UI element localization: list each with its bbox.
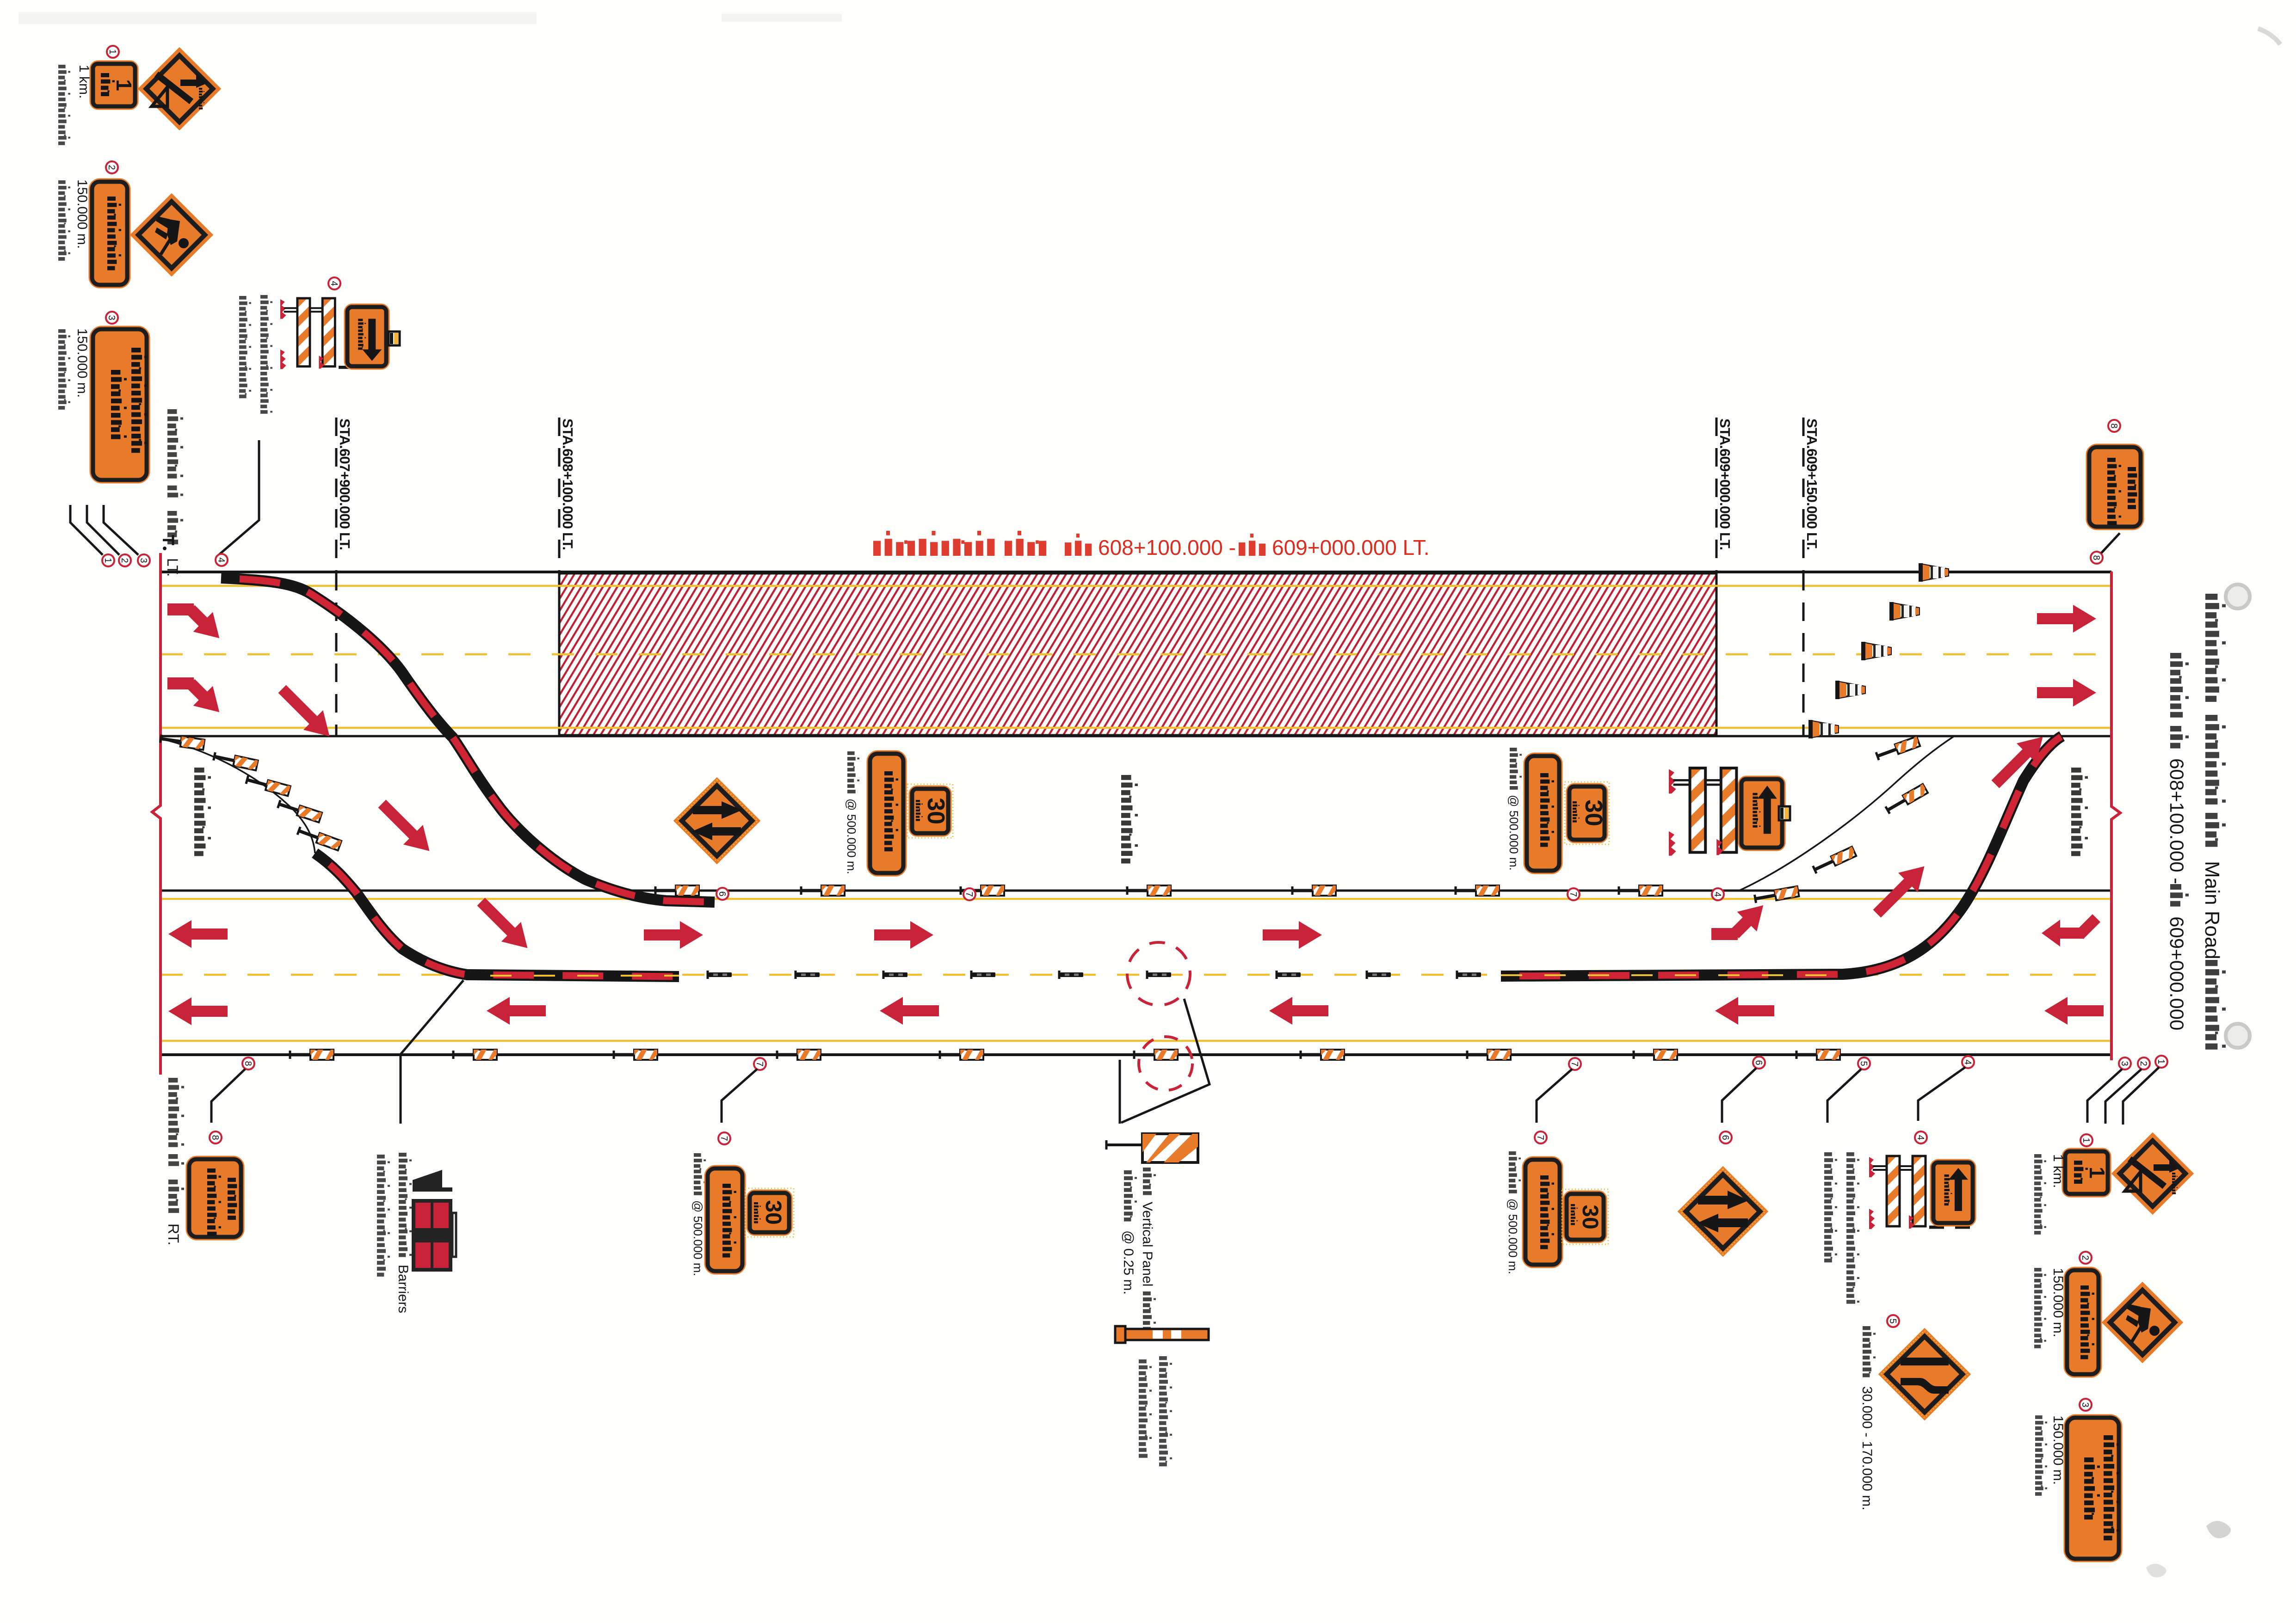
- svg-text:@ 500.000 m.: @ 500.000 m.: [845, 799, 858, 874]
- svg-text:STA.608+100.000 LT.: STA.608+100.000 LT.: [560, 418, 576, 550]
- svg-text:150.000 m.: 150.000 m.: [2050, 1415, 2066, 1485]
- svg-text:7: 7: [1568, 891, 1578, 897]
- svg-text:6: 6: [717, 891, 727, 896]
- svg-text:Main Road: Main Road: [2201, 861, 2223, 959]
- svg-text:8: 8: [210, 1135, 220, 1140]
- svg-text:STA.609+000.000 LT.: STA.609+000.000 LT.: [1717, 418, 1733, 550]
- svg-text:4: 4: [1963, 1059, 1973, 1064]
- svg-text:30: 30: [922, 798, 949, 824]
- svg-text:6: 6: [1753, 1060, 1764, 1065]
- svg-text:1: 1: [103, 558, 113, 563]
- svg-text:4: 4: [329, 281, 339, 286]
- svg-text:7: 7: [1535, 1135, 1545, 1140]
- svg-text:3: 3: [2119, 1061, 2129, 1066]
- svg-text:608+100.000 -: 608+100.000 -: [2166, 758, 2188, 884]
- svg-text:7: 7: [1569, 1061, 1580, 1066]
- svg-text:2: 2: [2080, 1255, 2090, 1260]
- svg-text:150.000 m.: 150.000 m.: [2050, 1268, 2066, 1337]
- svg-text:1: 1: [2156, 1059, 2166, 1064]
- svg-text:4: 4: [1915, 1135, 1926, 1140]
- svg-text:3: 3: [138, 558, 148, 563]
- svg-text:30: 30: [761, 1200, 785, 1224]
- svg-text:2: 2: [119, 558, 130, 563]
- svg-text:1 km.: 1 km.: [76, 65, 92, 98]
- svg-text:7: 7: [719, 1136, 729, 1141]
- svg-text:1: 1: [2081, 1137, 2091, 1143]
- svg-text:1: 1: [2085, 1167, 2109, 1179]
- svg-text:RT.: RT.: [165, 1223, 182, 1245]
- svg-text:Barriers: Barriers: [395, 1265, 411, 1313]
- svg-text:LT.: LT.: [164, 558, 181, 577]
- svg-text:Vertical Panel: Vertical Panel: [1140, 1202, 1155, 1286]
- svg-text:8: 8: [2091, 555, 2101, 560]
- svg-text:609+000.000: 609+000.000: [2166, 916, 2188, 1030]
- svg-text:3: 3: [106, 315, 117, 320]
- svg-text:STA.609+150.000 LT.: STA.609+150.000 LT.: [1804, 418, 1820, 550]
- svg-text:@ 500.000 m.: @ 500.000 m.: [1506, 1199, 1520, 1274]
- svg-text:3: 3: [2080, 1402, 2090, 1407]
- svg-text:8: 8: [2109, 423, 2119, 428]
- svg-text:609+000.000 LT.: 609+000.000 LT.: [1272, 535, 1430, 559]
- svg-text:5: 5: [1858, 1061, 1869, 1066]
- svg-text:6: 6: [1720, 1135, 1730, 1140]
- svg-text:1: 1: [112, 79, 136, 91]
- svg-text:2: 2: [2138, 1061, 2148, 1066]
- svg-text:4: 4: [216, 557, 226, 562]
- svg-text:608+100.000 -: 608+100.000 -: [1098, 535, 1236, 559]
- svg-text:STA.607+900.000 LT.: STA.607+900.000 LT.: [337, 418, 353, 550]
- svg-text:@ 0.25 m.: @ 0.25 m.: [1121, 1230, 1136, 1295]
- svg-text:7: 7: [754, 1061, 765, 1066]
- svg-text:4: 4: [1712, 891, 1722, 897]
- svg-text:@ 500.000 m.: @ 500.000 m.: [691, 1200, 705, 1276]
- svg-text:150.000 m.: 150.000 m.: [74, 328, 90, 398]
- svg-text:150.000 m.: 150.000 m.: [74, 179, 90, 249]
- svg-text:@ 500.000 m.: @ 500.000 m.: [1507, 795, 1521, 871]
- svg-text:2: 2: [106, 165, 117, 170]
- svg-text:30: 30: [1580, 799, 1607, 826]
- svg-text:8: 8: [243, 1061, 253, 1066]
- svg-text:5: 5: [1888, 1318, 1898, 1323]
- svg-text:1: 1: [107, 49, 117, 54]
- svg-text:30: 30: [1578, 1205, 1602, 1229]
- svg-text:1 km.: 1 km.: [2050, 1154, 2066, 1188]
- svg-text:30.000 - 170.000 m.: 30.000 - 170.000 m.: [1859, 1386, 1875, 1511]
- svg-text:7: 7: [964, 891, 974, 897]
